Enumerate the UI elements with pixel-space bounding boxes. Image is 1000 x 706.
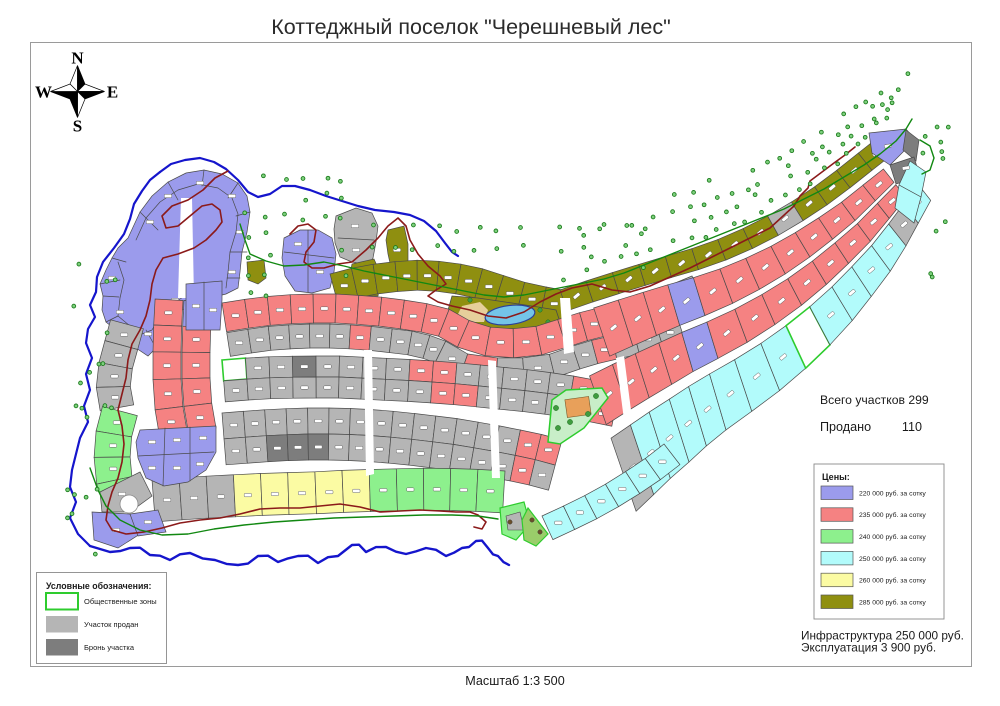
svg-text:Эксплуатация 3 900 руб.: Эксплуатация 3 900 руб. [801, 641, 936, 655]
svg-text:E: E [107, 83, 118, 102]
svg-text:S: S [73, 117, 82, 136]
svg-text:240 000 руб. за сотку: 240 000 руб. за сотку [859, 533, 926, 541]
svg-text:Общественные зоны: Общественные зоны [84, 597, 157, 606]
svg-text:N: N [71, 49, 84, 68]
svg-text:235 000 руб. за сотку: 235 000 руб. за сотку [859, 511, 926, 519]
svg-text:110: 110 [902, 420, 922, 434]
svg-text:Участок продан: Участок продан [84, 620, 138, 629]
svg-text:Цены:: Цены: [822, 472, 850, 482]
svg-text:W: W [35, 83, 52, 102]
svg-text:260 000 руб. за сотку: 260 000 руб. за сотку [859, 577, 926, 585]
svg-text:Бронь участка: Бронь участка [84, 643, 135, 652]
svg-text:220 000 руб. за сотку: 220 000 руб. за сотку [859, 489, 926, 497]
svg-text:Коттеджный поселок "Черешневый: Коттеджный поселок "Черешневый лес" [271, 15, 671, 39]
svg-text:Масштаб 1:3 500: Масштаб 1:3 500 [465, 674, 564, 688]
svg-text:250 000 руб. за сотку: 250 000 руб. за сотку [859, 555, 926, 563]
svg-text:Условные обозначения:: Условные обозначения: [46, 581, 152, 591]
svg-text:Продано: Продано [820, 420, 871, 434]
svg-text:Всего участков 299: Всего участков 299 [820, 393, 929, 407]
svg-text:285 000 руб. за сотку: 285 000 руб. за сотку [859, 598, 926, 606]
